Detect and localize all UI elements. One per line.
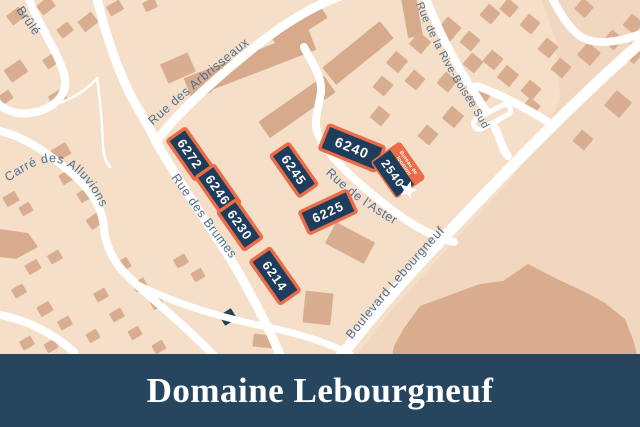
title-banner: Domaine Lebourgneuf xyxy=(0,354,640,427)
map-container: BrûléCarré des AlluvionsRue des Arbrisse… xyxy=(0,0,640,354)
site-map-svg: BrûléCarré des AlluvionsRue des Arbrisse… xyxy=(0,0,640,354)
house xyxy=(302,291,333,326)
development-title: Domaine Lebourgneuf xyxy=(147,371,494,411)
screenshot-stage: BrûléCarré des AlluvionsRue des Arbrisse… xyxy=(0,0,640,427)
